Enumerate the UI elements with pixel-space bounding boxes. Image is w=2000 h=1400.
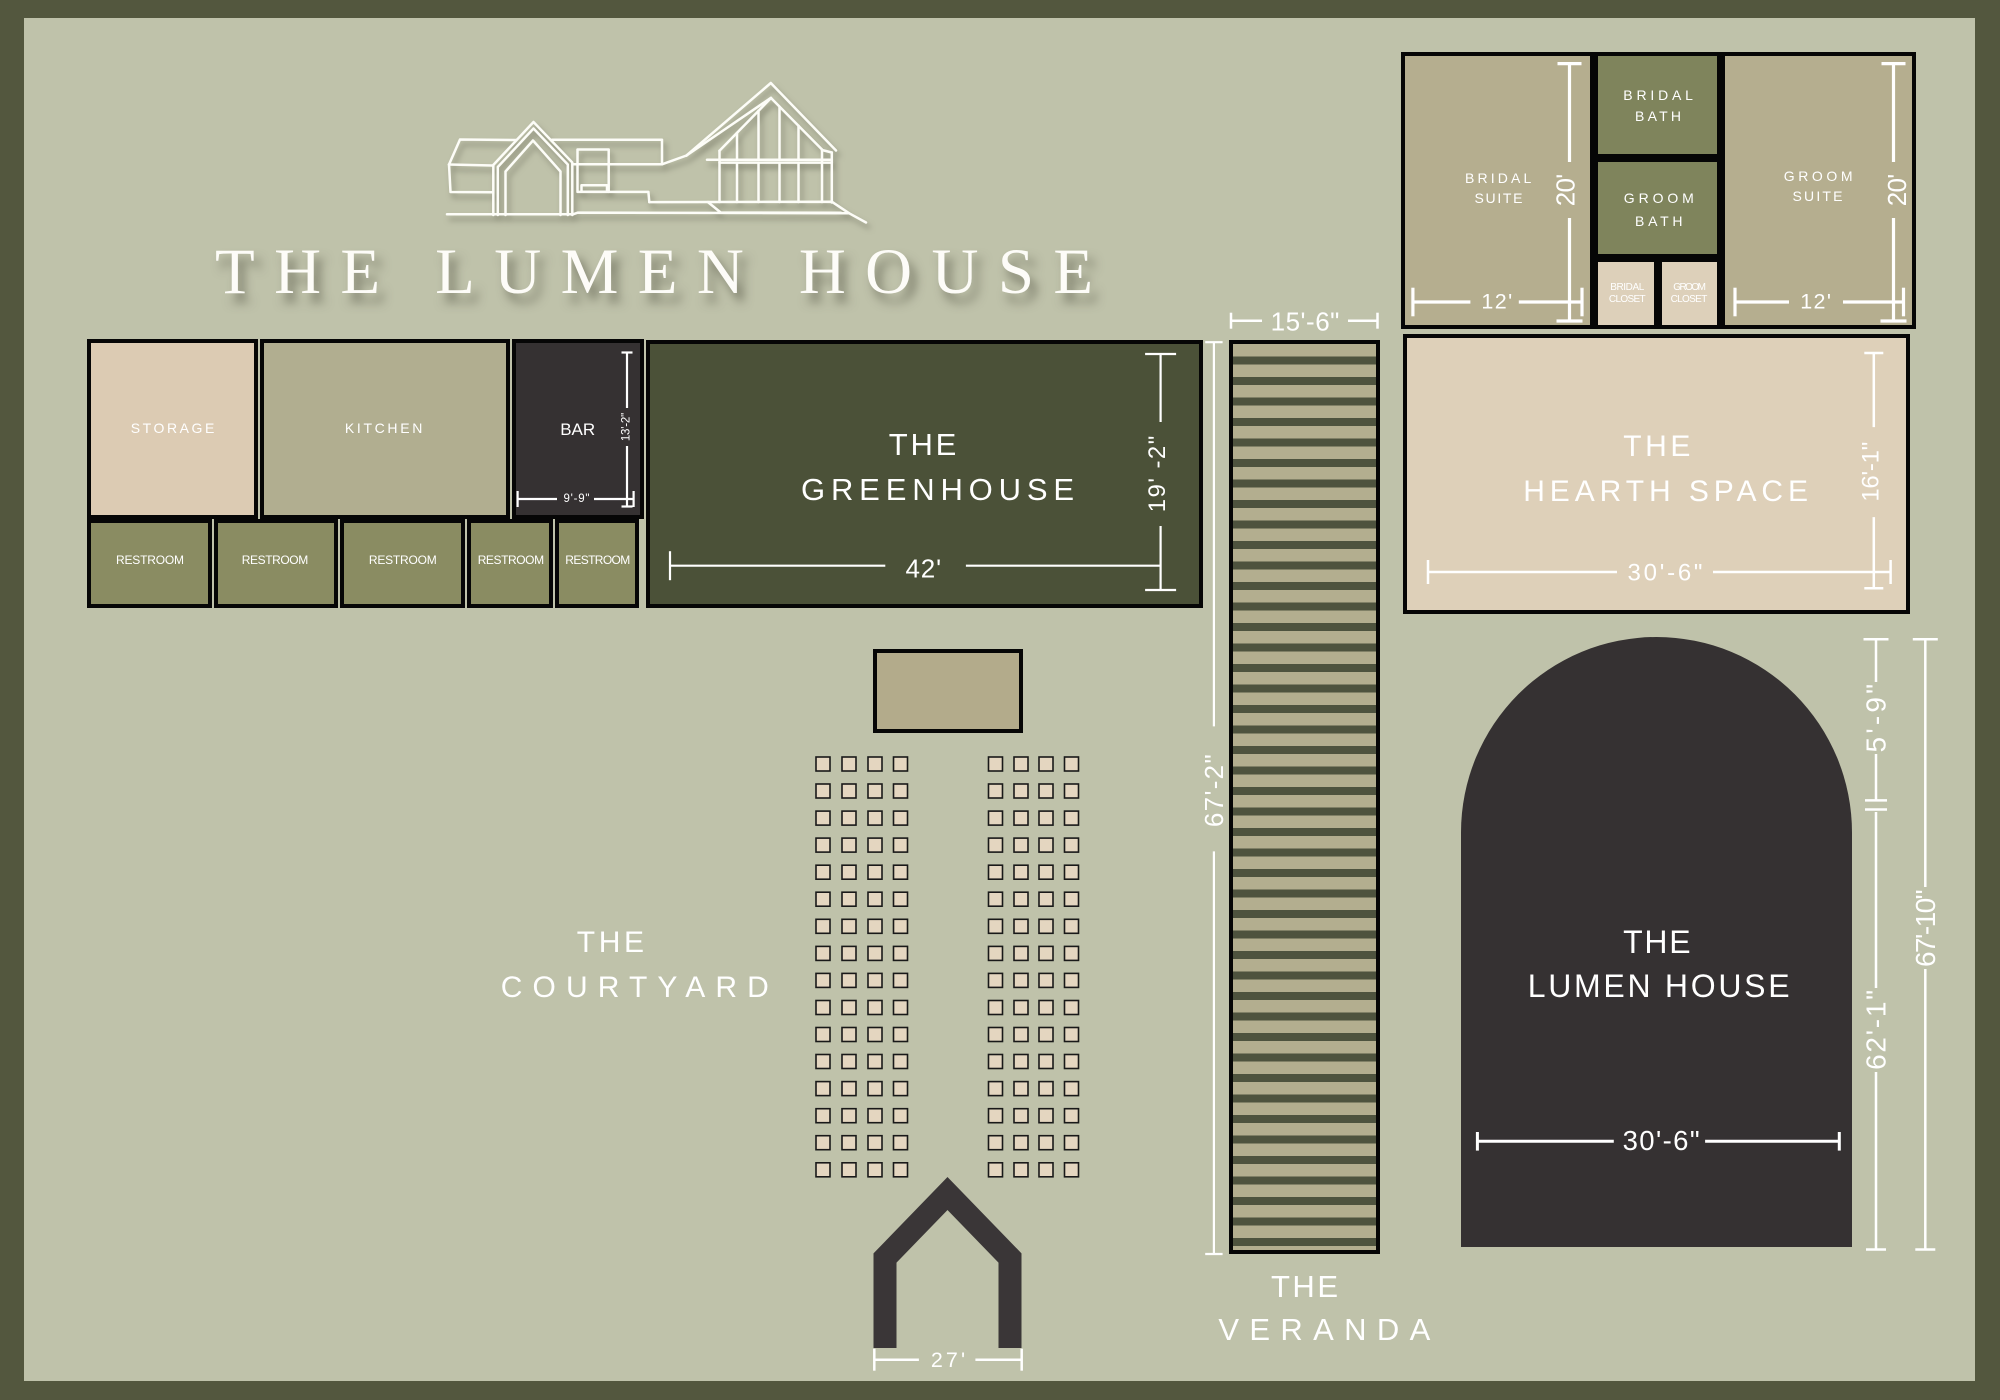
svg-text:13'-2": 13'-2" [621,413,633,441]
svg-text:27': 27' [931,1348,968,1372]
svg-text:12': 12' [1800,290,1832,314]
svg-text:20': 20' [1882,174,1912,206]
svg-text:15'-6": 15'-6" [1271,307,1340,337]
svg-text:16'-1": 16'-1" [1857,442,1884,502]
svg-text:20': 20' [1551,174,1581,206]
svg-text:42': 42' [905,553,941,583]
svg-text:19' -2": 19' -2" [1144,434,1171,512]
svg-text:30'-6": 30'-6" [1628,560,1706,587]
svg-text:67'-2": 67'-2" [1199,753,1229,827]
svg-text:30'-6": 30'-6" [1623,1125,1701,1156]
svg-text:12': 12' [1481,290,1513,314]
svg-text:62'-1": 62'-1" [1861,988,1892,1070]
svg-text:67'-10": 67'-10" [1910,890,1941,967]
svg-text:5'-9": 5'-9" [1861,681,1892,753]
svg-text:9'-9": 9'-9" [563,493,590,505]
